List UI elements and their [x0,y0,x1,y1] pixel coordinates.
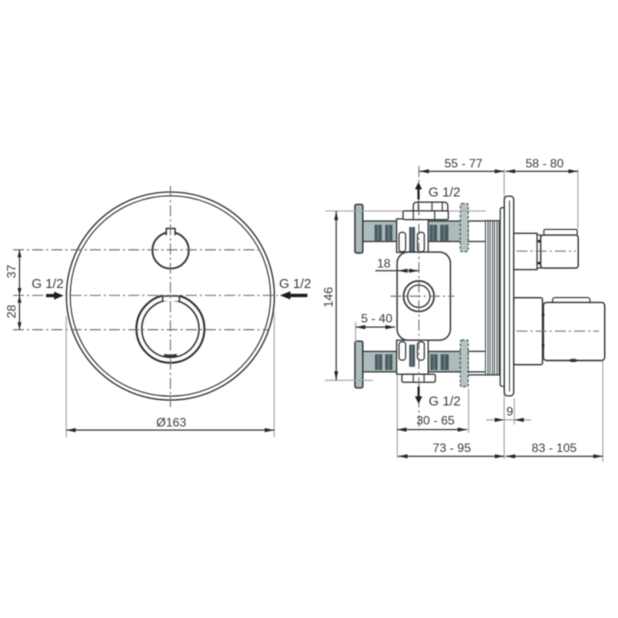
svg-text:G 1/2: G 1/2 [32,276,64,291]
svg-text:55 - 77: 55 - 77 [444,156,482,170]
svg-text:28: 28 [4,305,18,319]
svg-text:37: 37 [4,265,18,279]
svg-text:146: 146 [322,287,336,308]
svg-text:Ø163: Ø163 [156,416,186,430]
svg-text:83 - 105: 83 - 105 [532,441,577,455]
svg-text:G 1/2: G 1/2 [429,394,461,409]
svg-text:5 - 40: 5 - 40 [361,312,393,326]
svg-text:58 - 80: 58 - 80 [525,156,563,170]
svg-text:9: 9 [506,405,513,419]
svg-text:30 - 65: 30 - 65 [416,414,454,428]
svg-text:G 1/2: G 1/2 [428,184,460,199]
svg-text:73 - 95: 73 - 95 [433,441,471,455]
svg-text:18: 18 [377,257,391,271]
svg-text:G 1/2: G 1/2 [279,276,311,291]
